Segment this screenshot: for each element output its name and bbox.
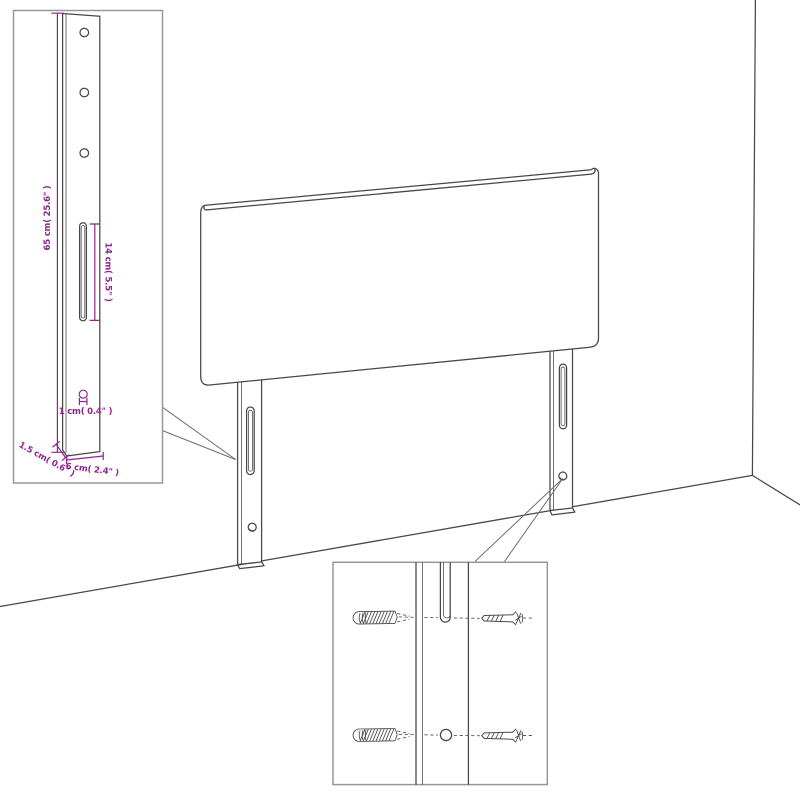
diagram-page: 65 cm( 25.6" ) 14 cm( 5.5" ) 1 cm( 0.4" … [0,0,800,800]
callout-lines [163,407,563,561]
leg-inset-callout-line-lower [163,431,236,460]
screw-inset-callout-line-right [505,479,563,562]
leg-height-label: 65 cm( 25.6" ) [43,185,53,250]
screw-inset-callout-line-left [475,479,563,562]
slot-length-label: 14 cm( 5.5" ) [103,242,113,302]
right-mounting-leg [550,336,575,515]
panel-outline [201,168,599,385]
headboard-panel [201,168,599,385]
wall-corner-line [752,0,755,475]
leg-dimension-inset: 65 cm( 25.6" ) 14 cm( 5.5" ) 1 cm( 0.4" … [14,11,163,484]
hole-diameter-label: 1 cm( 0.4" ) [59,407,113,417]
fastener-detail-inset [333,562,547,784]
leg-inset-callout-line-upper [163,407,236,459]
diagram-canvas: 65 cm( 25.6" ) 14 cm( 5.5" ) 1 cm( 0.4" … [0,0,800,800]
floor-line-right [752,475,800,504]
left-mounting-leg [238,368,265,569]
